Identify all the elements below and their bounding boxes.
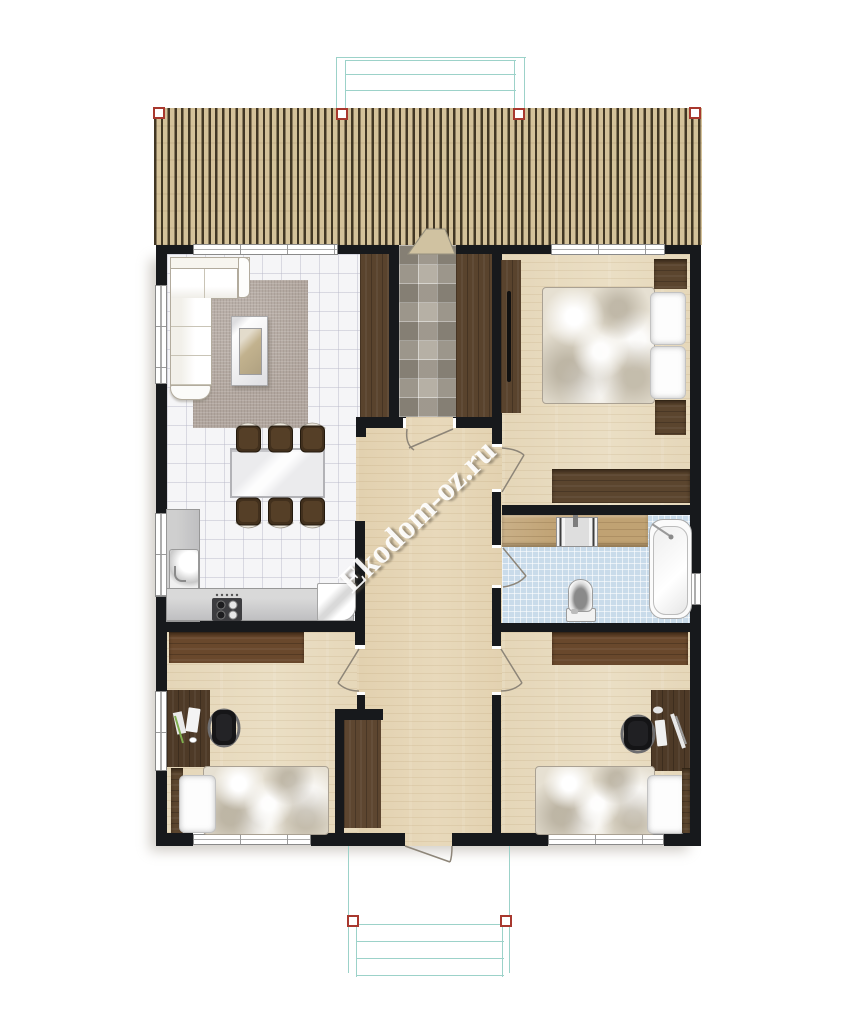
svg-text:Ekodom-oz.ru: Ekodom-oz.ru bbox=[333, 433, 504, 600]
